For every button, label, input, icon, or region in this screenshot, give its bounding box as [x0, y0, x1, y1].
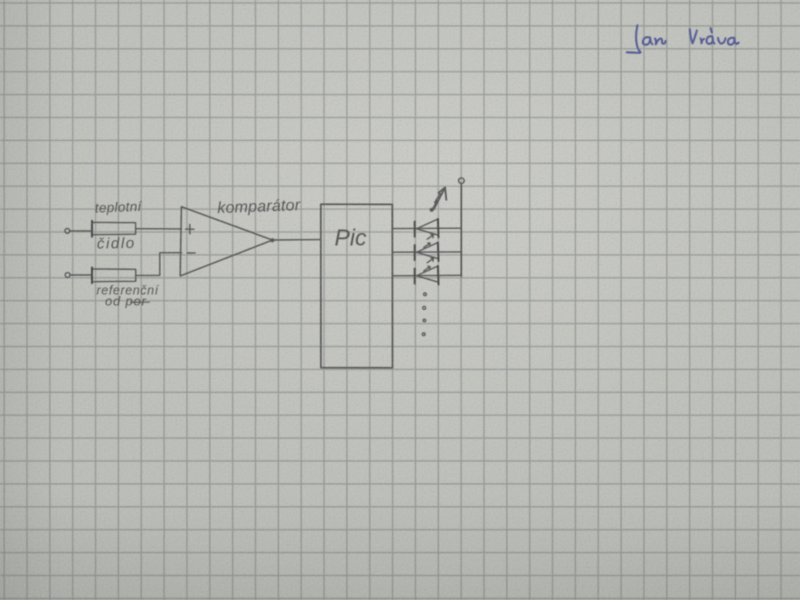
- svg-text:čidlo: čidlo: [97, 235, 136, 253]
- svg-text:komparátor: komparátor: [217, 197, 301, 217]
- svg-text:teplotní: teplotní: [95, 199, 143, 216]
- svg-text:Pic: Pic: [335, 225, 367, 251]
- svg-text:od por: od por: [105, 294, 147, 309]
